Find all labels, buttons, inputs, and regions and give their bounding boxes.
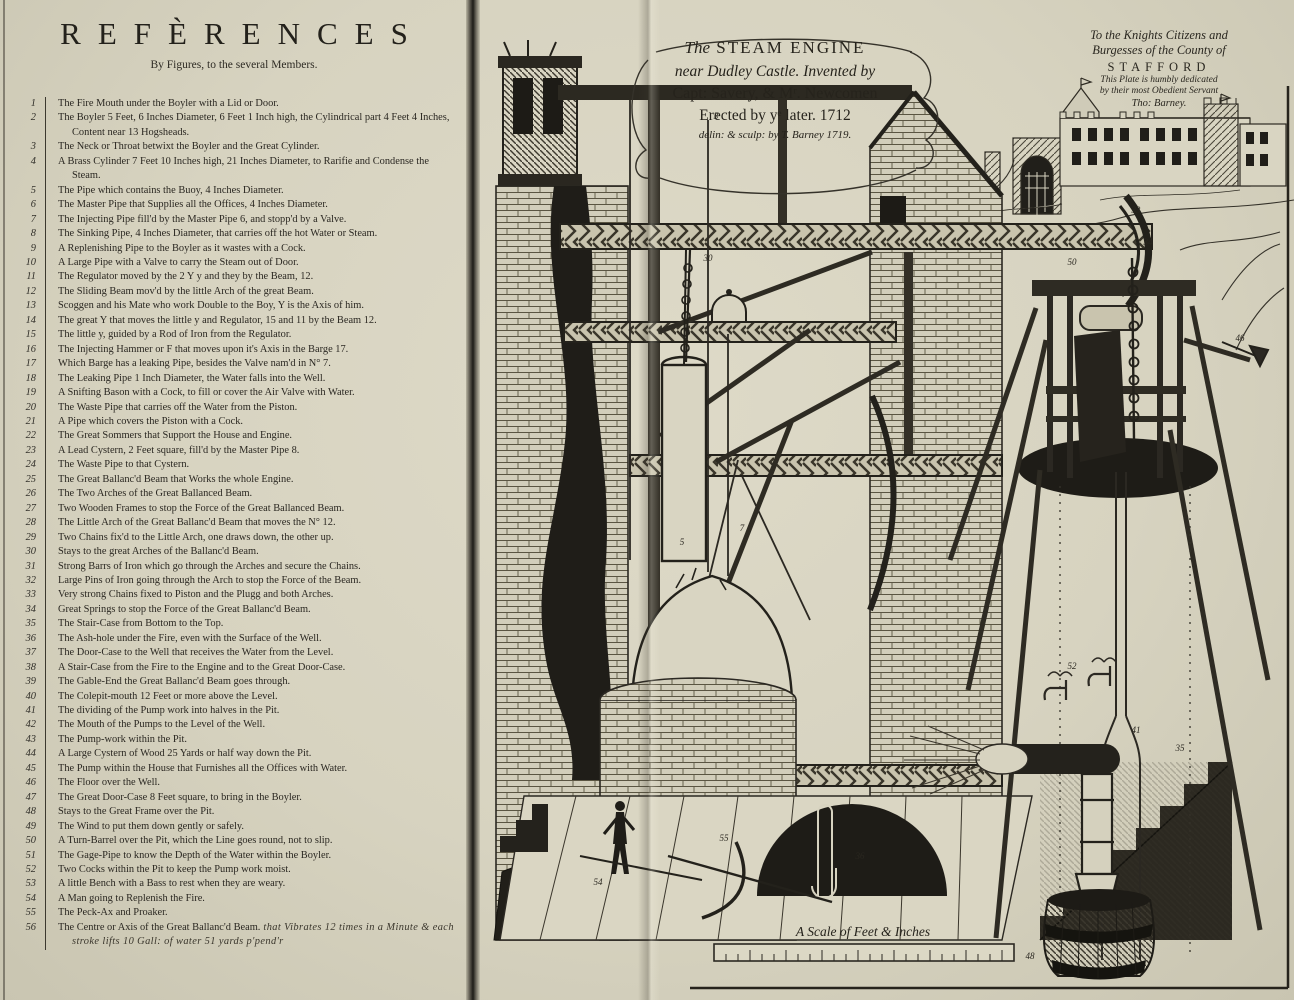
reference-item: 49The Wind to put them down gently or sa… [12, 820, 460, 834]
reference-text: The Boyler 5 Feet, 6 Inches Diameter, 6 … [45, 111, 460, 140]
reference-item: 28The Little Arch of the Great Ballanc'd… [12, 516, 460, 530]
reference-item: 35The Stair-Case from Bottom to the Top. [12, 617, 460, 631]
reference-text: The Centre or Axis of the Great Ballanc'… [45, 921, 460, 950]
reference-number: 28 [12, 516, 45, 530]
figure-number: 33 [1132, 205, 1141, 215]
reference-item: 55The Peck-Ax and Proaker. [12, 906, 460, 920]
plate-inventors: Capt: Savery, & Mʳ. Newcomen [630, 85, 920, 103]
reference-text: The Sliding Beam mov'd by the little Arc… [45, 285, 460, 299]
reference-number: 14 [12, 314, 45, 328]
reference-text: The Gable-End the Great Ballanc'd Beam g… [45, 675, 460, 689]
reference-item: 4A Brass Cylinder 7 Feet 10 Inches high,… [12, 155, 460, 184]
reference-text: The Mouth of the Pumps to the Level of t… [45, 718, 460, 732]
figure-number: 36 [856, 851, 865, 861]
reference-number: 12 [12, 285, 45, 299]
reference-number: 5 [12, 184, 45, 198]
reference-text: Stays to the great Arches of the Ballanc… [45, 545, 460, 559]
reference-number: 53 [12, 877, 45, 891]
reference-item: 53A little Bench with a Bass to rest whe… [12, 877, 460, 891]
reference-item: 14The great Y that moves the little y an… [12, 314, 460, 328]
figure-number: 35 [1176, 743, 1185, 753]
reference-text: A Stair-Case from the Fire to the Engine… [45, 661, 460, 675]
chimney-cap [498, 40, 582, 186]
reference-number: 34 [12, 603, 45, 617]
reference-number: 26 [12, 487, 45, 501]
reference-number: 16 [12, 343, 45, 357]
reference-number: 22 [12, 429, 45, 443]
reference-number: 44 [12, 747, 45, 761]
figure-number: 52 [1068, 661, 1077, 671]
reference-text: The Wind to put them down gently or safe… [45, 820, 460, 834]
reference-item: 23A Lead Cystern, 2 Feet square, fill'd … [12, 444, 460, 458]
dedication-line: Burgesses of the County of [1028, 43, 1290, 58]
reference-text: The Neck or Throat betwixt the Boyler an… [45, 140, 460, 154]
reference-item: 47The Great Door-Case 8 Feet square, to … [12, 791, 460, 805]
reference-item: 37The Door-Case to the Well that receive… [12, 646, 460, 660]
reference-text: A Lead Cystern, 2 Feet square, fill'd by… [45, 444, 460, 458]
reference-number: 50 [12, 834, 45, 848]
reference-item: 19A Snifting Bason with a Cock, to fill … [12, 386, 460, 400]
reference-item: 43The Pump-work within the Pit. [12, 733, 460, 747]
figure-number: 46 [1236, 333, 1245, 343]
reference-number: 6 [12, 198, 45, 212]
reference-number: 51 [12, 849, 45, 863]
figure-number: 48 [1026, 951, 1035, 961]
reference-text: The Regulator moved by the 2 Y y and the… [45, 270, 460, 284]
reference-text: The Great Sommers that Support the House… [45, 429, 460, 443]
reference-text: The Fire Mouth under the Boyler with a L… [45, 97, 460, 111]
reference-item: 2The Boyler 5 Feet, 6 Inches Diameter, 6… [12, 111, 460, 140]
reference-number: 37 [12, 646, 45, 660]
reference-text: A Turn-Barrel over the Pit, which the Li… [45, 834, 460, 848]
book-gutter [466, 0, 480, 1000]
figure-number: 5 [680, 537, 685, 547]
engraving-illustration [480, 0, 1294, 1000]
reference-text: A Large Cystern of Wood 25 Yards or half… [45, 747, 460, 761]
reference-number: 9 [12, 242, 45, 256]
reference-number: 29 [12, 531, 45, 545]
reference-text: The Floor over the Well. [45, 776, 460, 790]
reference-number: 10 [12, 256, 45, 270]
figure-number: 30 [704, 253, 713, 263]
reference-number: 23 [12, 444, 45, 458]
reference-number: 4 [12, 155, 45, 184]
reference-item: 27Two Wooden Frames to stop the Force of… [12, 502, 460, 516]
reference-text: The Pipe which contains the Buoy, 4 Inch… [45, 184, 460, 198]
figure-number: 55 [720, 833, 729, 843]
references-title: REFÈRENCES [0, 16, 468, 52]
figure-number: 3 [714, 111, 719, 121]
plate-title: The STEAM ENGINE [630, 38, 920, 58]
reference-item: 42The Mouth of the Pumps to the Level of… [12, 718, 460, 732]
reference-number: 7 [12, 213, 45, 227]
reference-item: 7The Injecting Pipe fill'd by the Master… [12, 213, 460, 227]
reference-text: The Pump within the House that Furnishes… [45, 762, 460, 776]
reference-item: 15The little y, guided by a Rod of Iron … [12, 328, 460, 342]
reference-number: 11 [12, 270, 45, 284]
reference-text: Two Cocks within the Pit to keep the Pum… [45, 863, 460, 877]
reference-text: Large Pins of Iron going through the Arc… [45, 574, 460, 588]
reference-text: The Sinking Pipe, 4 Inches Diameter, tha… [45, 227, 460, 241]
figure-number: 54 [594, 877, 603, 887]
reference-item: 3The Neck or Throat betwixt the Boyler a… [12, 140, 460, 154]
reference-number: 36 [12, 632, 45, 646]
reference-item: 20The Waste Pipe that carries off the Wa… [12, 401, 460, 415]
reference-item: 29Two Chains fix'd to the Little Arch, o… [12, 531, 460, 545]
scale-label: A Scale of Feet & Inches [706, 924, 1020, 940]
reference-item: 33Very strong Chains fixed to Piston and… [12, 588, 460, 602]
reference-item: 46The Floor over the Well. [12, 776, 460, 790]
reference-text: The dividing of the Pump work into halve… [45, 704, 460, 718]
reference-item: 13Scoggen and his Mate who work Double t… [12, 299, 460, 313]
dedication-line: by their most Obedient Servant [1028, 86, 1290, 97]
pump [1076, 774, 1118, 906]
reference-number: 31 [12, 560, 45, 574]
reference-number: 35 [12, 617, 45, 631]
reference-text: A Replenishing Pipe to the Boyler as it … [45, 242, 460, 256]
reference-item: 50A Turn-Barrel over the Pit, which the … [12, 834, 460, 848]
reference-number: 48 [12, 805, 45, 819]
reference-item: 26The Two Arches of the Great Ballanced … [12, 487, 460, 501]
dedication-line: This Plate is humbly dedicated [1028, 75, 1290, 86]
reference-text: The Injecting Pipe fill'd by the Master … [45, 213, 460, 227]
reference-number: 20 [12, 401, 45, 415]
reference-number: 45 [12, 762, 45, 776]
tub [1044, 889, 1154, 980]
engraving-plate: The STEAM ENGINE near Dudley Castle. Inv… [480, 0, 1294, 1000]
reference-item: 52Two Cocks within the Pit to keep the P… [12, 863, 460, 877]
reference-text: The Colepit-mouth 12 Feet or more above … [45, 690, 460, 704]
reference-item: 48Stays to the Great Frame over the Pit. [12, 805, 460, 819]
reference-text: The Waste Pipe that carries off the Wate… [45, 401, 460, 415]
reference-text: The Pump-work within the Pit. [45, 733, 460, 747]
dedication-county: STAFFORD [1028, 60, 1290, 75]
reference-item: 45The Pump within the House that Furnish… [12, 762, 460, 776]
scale-ruler [714, 944, 1014, 961]
reference-text: A Brass Cylinder 7 Feet 10 Inches high, … [45, 155, 460, 184]
page-edge-line [3, 0, 5, 1000]
reference-text: Great Springs to stop the Force of the G… [45, 603, 460, 617]
reference-item: 11The Regulator moved by the 2 Y y and t… [12, 270, 460, 284]
reference-item: 32Large Pins of Iron going through the A… [12, 574, 460, 588]
dedication-line: To the Knights Citizens and [1028, 28, 1290, 43]
reference-item: 21A Pipe which covers the Piston with a … [12, 415, 460, 429]
reference-number: 24 [12, 458, 45, 472]
reference-number: 42 [12, 718, 45, 732]
reference-number: 49 [12, 820, 45, 834]
reference-item: 18The Leaking Pipe 1 Inch Diameter, the … [12, 372, 460, 386]
cock-taps [1045, 658, 1116, 700]
dedication-signature: Tho: Barney. [1028, 98, 1290, 109]
reference-number: 19 [12, 386, 45, 400]
reference-text: A Pipe which covers the Piston with a Co… [45, 415, 460, 429]
reference-item: 6The Master Pipe that Supplies all the O… [12, 198, 460, 212]
reference-text: The Master Pipe that Supplies all the Of… [45, 198, 460, 212]
reference-number: 21 [12, 415, 45, 429]
figure-number: 50 [1068, 257, 1077, 267]
title-cartouche: The STEAM ENGINE near Dudley Castle. Inv… [630, 38, 920, 141]
reference-number: 47 [12, 791, 45, 805]
reference-item: 24The Waste Pipe to that Cystern. [12, 458, 460, 472]
reference-number: 41 [12, 704, 45, 718]
reference-number: 56 [12, 921, 45, 950]
reference-text: The Stair-Case from Bottom to the Top. [45, 617, 460, 631]
reference-text: The Door-Case to the Well that receives … [45, 646, 460, 660]
reference-item: 12The Sliding Beam mov'd by the little A… [12, 285, 460, 299]
reference-text: Scoggen and his Mate who work Double to … [45, 299, 460, 313]
reference-text: Stays to the Great Frame over the Pit. [45, 805, 460, 819]
reference-text: Very strong Chains fixed to Piston and t… [45, 588, 460, 602]
reference-item: 25The Great Ballanc'd Beam that Works th… [12, 473, 460, 487]
reference-number: 55 [12, 906, 45, 920]
plate-subtitle: near Dudley Castle. Invented by [630, 63, 920, 81]
reference-number: 13 [12, 299, 45, 313]
reference-item: 8The Sinking Pipe, 4 Inches Diameter, th… [12, 227, 460, 241]
reference-text: The Little Arch of the Great Ballanc'd B… [45, 516, 460, 530]
reference-text: The great Y that moves the little y and … [45, 314, 460, 328]
handwritten-note: that Vibrates 12 times in a Minute & eac… [72, 922, 454, 947]
reference-item: 51The Gage-Pipe to know the Depth of the… [12, 849, 460, 863]
reference-item: 39The Gable-End the Great Ballanc'd Beam… [12, 675, 460, 689]
reference-number: 30 [12, 545, 45, 559]
reference-text: The Waste Pipe to that Cystern. [45, 458, 460, 472]
references-page: REFÈRENCES By Figures, to the several Me… [0, 0, 468, 1000]
reference-item: 22The Great Sommers that Support the Hou… [12, 429, 460, 443]
reference-number: 33 [12, 588, 45, 602]
reference-number: 15 [12, 328, 45, 342]
reference-number: 3 [12, 140, 45, 154]
reference-item: 1The Fire Mouth under the Boyler with a … [12, 97, 460, 111]
reference-number: 43 [12, 733, 45, 747]
reference-text: A little Bench with a Bass to rest when … [45, 877, 460, 891]
reference-item: 9A Replenishing Pipe to the Boyler as it… [12, 242, 460, 256]
figure-number: 34 [1144, 237, 1153, 247]
reference-number: 32 [12, 574, 45, 588]
reference-item: 54A Man going to Replenish the Fire. [12, 892, 460, 906]
reference-text: A Large Pipe with a Valve to carry the S… [45, 256, 460, 270]
plate-engraver: delin: & sculp: by T. Barney 1719. [630, 129, 920, 141]
reference-number: 40 [12, 690, 45, 704]
reference-text: The little y, guided by a Rod of Iron fr… [45, 328, 460, 342]
plate-erected: Erected by yᵉ later. 1712 [630, 107, 920, 125]
reference-item: 56The Centre or Axis of the Great Ballan… [12, 921, 460, 950]
reference-item: 44A Large Cystern of Wood 25 Yards or ha… [12, 747, 460, 761]
reference-text: A Man going to Replenish the Fire. [45, 892, 460, 906]
reference-number: 18 [12, 372, 45, 386]
reference-number: 54 [12, 892, 45, 906]
reference-text: The Great Ballanc'd Beam that Works the … [45, 473, 460, 487]
reference-number: 8 [12, 227, 45, 241]
reference-item: 36The Ash-hole under the Fire, even with… [12, 632, 460, 646]
dedication: To the Knights Citizens and Burgesses of… [1028, 28, 1290, 109]
reference-number: 2 [12, 111, 45, 140]
references-subtitle: By Figures, to the several Members. [0, 59, 468, 71]
reference-number: 17 [12, 357, 45, 371]
reference-item: 31Strong Barrs of Iron which go through … [12, 560, 460, 574]
reference-number: 25 [12, 473, 45, 487]
reference-text: The Peck-Ax and Proaker. [45, 906, 460, 920]
reference-item: 5The Pipe which contains the Buoy, 4 Inc… [12, 184, 460, 198]
reference-item: 17Which Barge has a leaking Pipe, beside… [12, 357, 460, 371]
reference-text: Two Wooden Frames to stop the Force of t… [45, 502, 460, 516]
reference-text: The Leaking Pipe 1 Inch Diameter, the Wa… [45, 372, 460, 386]
reference-item: 16The Injecting Hammer or F that moves u… [12, 343, 460, 357]
reference-text: The Two Arches of the Great Ballanced Be… [45, 487, 460, 501]
reference-text: A Snifting Bason with a Cock, to fill or… [45, 386, 460, 400]
book-spread: REFÈRENCES By Figures, to the several Me… [0, 0, 1294, 1000]
reference-number: 39 [12, 675, 45, 689]
reference-text: Two Chains fix'd to the Little Arch, one… [45, 531, 460, 545]
reference-item: 41The dividing of the Pump work into hal… [12, 704, 460, 718]
reference-text: Which Barge has a leaking Pipe, besides … [45, 357, 460, 371]
reference-item: 34Great Springs to stop the Force of the… [12, 603, 460, 617]
reference-number: 1 [12, 97, 45, 111]
figure-number: 41 [1132, 725, 1141, 735]
reference-number: 52 [12, 863, 45, 877]
reference-text: The Injecting Hammer or F that moves upo… [45, 343, 460, 357]
references-list: 1The Fire Mouth under the Boyler with a … [12, 97, 460, 950]
reference-text: Strong Barrs of Iron which go through th… [45, 560, 460, 574]
reference-text: The Great Door-Case 8 Feet square, to br… [45, 791, 460, 805]
reference-number: 27 [12, 502, 45, 516]
reference-item: 10A Large Pipe with a Valve to carry the… [12, 256, 460, 270]
reference-number: 38 [12, 661, 45, 675]
reference-item: 40The Colepit-mouth 12 Feet or more abov… [12, 690, 460, 704]
reference-text: The Ash-hole under the Fire, even with t… [45, 632, 460, 646]
reference-text: The Gage-Pipe to know the Depth of the W… [45, 849, 460, 863]
reference-item: 30Stays to the great Arches of the Balla… [12, 545, 460, 559]
reference-item: 38A Stair-Case from the Fire to the Engi… [12, 661, 460, 675]
figure-number: 7 [740, 523, 745, 533]
reference-number: 46 [12, 776, 45, 790]
